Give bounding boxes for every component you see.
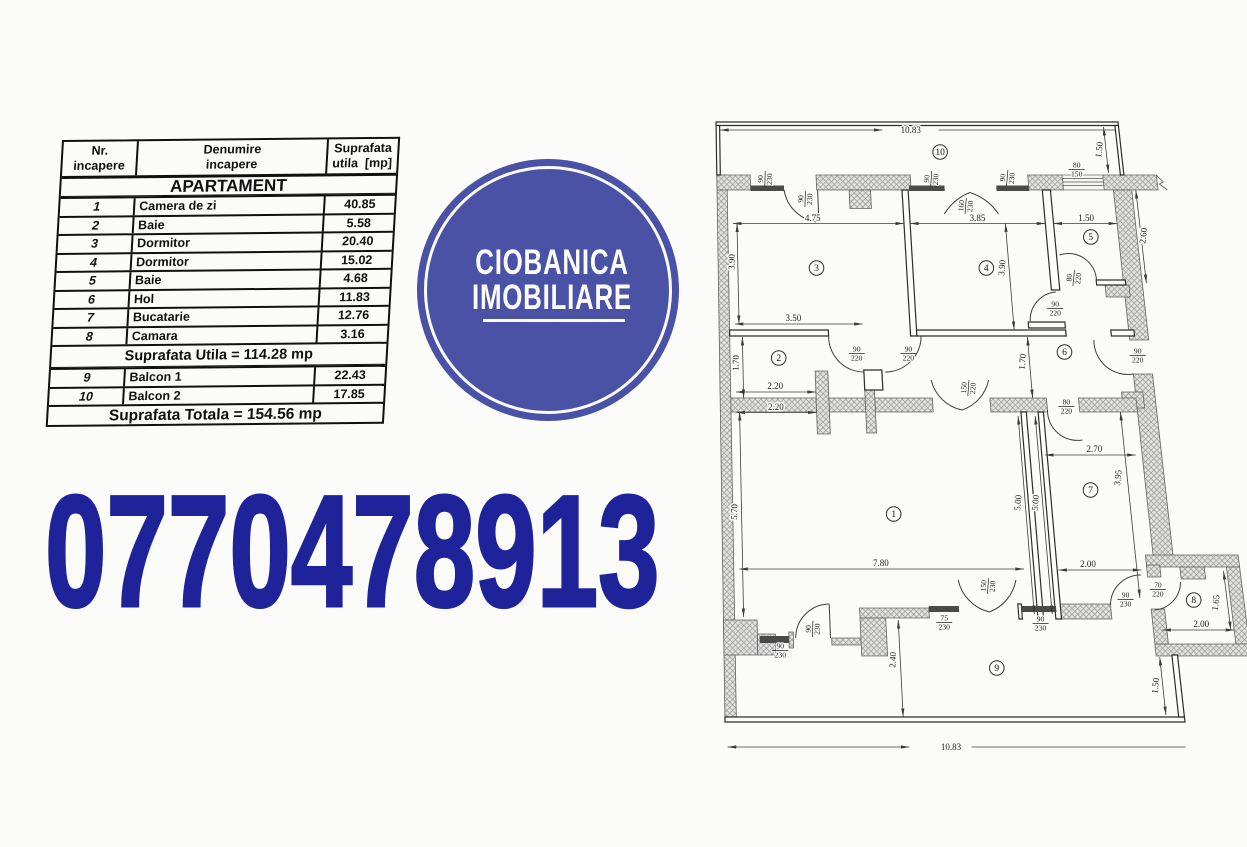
svg-text:70: 70 <box>1154 581 1162 590</box>
svg-text:80: 80 <box>1063 398 1071 407</box>
svg-text:1.70: 1.70 <box>1017 353 1028 370</box>
svg-text:6: 6 <box>1062 348 1067 358</box>
svg-text:2.20: 2.20 <box>767 381 783 391</box>
svg-text:230: 230 <box>965 200 975 212</box>
svg-text:2.20: 2.20 <box>768 402 784 412</box>
svg-text:3.50: 3.50 <box>786 313 802 323</box>
svg-text:230: 230 <box>988 580 998 592</box>
svg-text:230: 230 <box>775 651 787 660</box>
svg-text:230: 230 <box>1120 600 1132 609</box>
svg-text:220: 220 <box>851 354 863 363</box>
svg-text:8: 8 <box>1191 596 1196 606</box>
svg-text:1.50: 1.50 <box>1078 213 1094 223</box>
svg-text:230: 230 <box>939 623 951 632</box>
svg-text:220: 220 <box>1050 309 1062 318</box>
svg-text:10.83: 10.83 <box>941 742 962 752</box>
svg-text:90: 90 <box>1134 347 1142 356</box>
svg-text:2.70: 2.70 <box>1087 444 1103 454</box>
svg-text:90: 90 <box>756 175 765 183</box>
svg-text:90: 90 <box>905 345 913 354</box>
svg-text:4.75: 4.75 <box>805 213 821 223</box>
svg-text:80: 80 <box>1073 161 1081 170</box>
svg-text:10: 10 <box>935 148 945 158</box>
svg-text:3.95: 3.95 <box>1112 469 1124 486</box>
svg-text:5: 5 <box>1088 233 1093 243</box>
svg-text:75: 75 <box>940 614 948 623</box>
svg-text:3.90: 3.90 <box>726 253 736 269</box>
svg-text:230: 230 <box>931 173 941 185</box>
svg-text:220: 220 <box>1061 407 1073 416</box>
svg-text:5.00: 5.00 <box>1012 494 1023 511</box>
svg-text:220: 220 <box>903 354 915 363</box>
svg-text:5.70: 5.70 <box>729 503 739 519</box>
svg-text:2.60: 2.60 <box>1137 227 1149 244</box>
svg-text:230: 230 <box>813 623 822 635</box>
svg-text:230: 230 <box>805 193 814 205</box>
svg-text:230: 230 <box>765 173 774 185</box>
svg-text:90: 90 <box>796 195 805 203</box>
svg-text:150: 150 <box>1071 170 1083 179</box>
svg-text:220: 220 <box>1132 356 1144 365</box>
svg-text:2.00: 2.00 <box>1193 619 1209 629</box>
svg-text:10.83: 10.83 <box>901 125 922 135</box>
svg-text:220: 220 <box>1073 272 1083 284</box>
svg-text:90: 90 <box>804 625 813 633</box>
svg-text:90: 90 <box>1122 591 1130 600</box>
svg-text:220: 220 <box>1152 590 1164 599</box>
svg-text:9: 9 <box>994 664 999 674</box>
svg-text:90: 90 <box>1051 300 1059 309</box>
svg-text:5.00: 5.00 <box>1030 494 1041 511</box>
svg-text:3.85: 3.85 <box>970 213 986 223</box>
svg-text:3: 3 <box>814 264 819 274</box>
svg-text:1.65: 1.65 <box>1210 594 1222 611</box>
svg-text:2: 2 <box>776 354 781 364</box>
svg-text:1: 1 <box>891 510 896 520</box>
svg-text:90: 90 <box>777 642 785 651</box>
svg-text:7: 7 <box>1088 486 1093 496</box>
svg-text:230: 230 <box>1007 172 1017 184</box>
svg-text:230: 230 <box>1035 624 1047 633</box>
svg-text:90: 90 <box>1037 615 1045 624</box>
svg-text:1.50: 1.50 <box>1150 677 1162 694</box>
svg-text:1.50: 1.50 <box>1093 141 1105 158</box>
svg-text:2.40: 2.40 <box>887 651 898 668</box>
svg-text:1.70: 1.70 <box>731 354 741 370</box>
svg-text:4: 4 <box>984 264 989 274</box>
svg-text:90: 90 <box>853 345 861 354</box>
svg-text:7.80: 7.80 <box>873 558 889 568</box>
svg-text:90: 90 <box>922 174 931 182</box>
svg-text:2.00: 2.00 <box>1080 559 1096 569</box>
svg-text:3.90: 3.90 <box>996 259 1007 276</box>
svg-text:220: 220 <box>968 382 978 394</box>
